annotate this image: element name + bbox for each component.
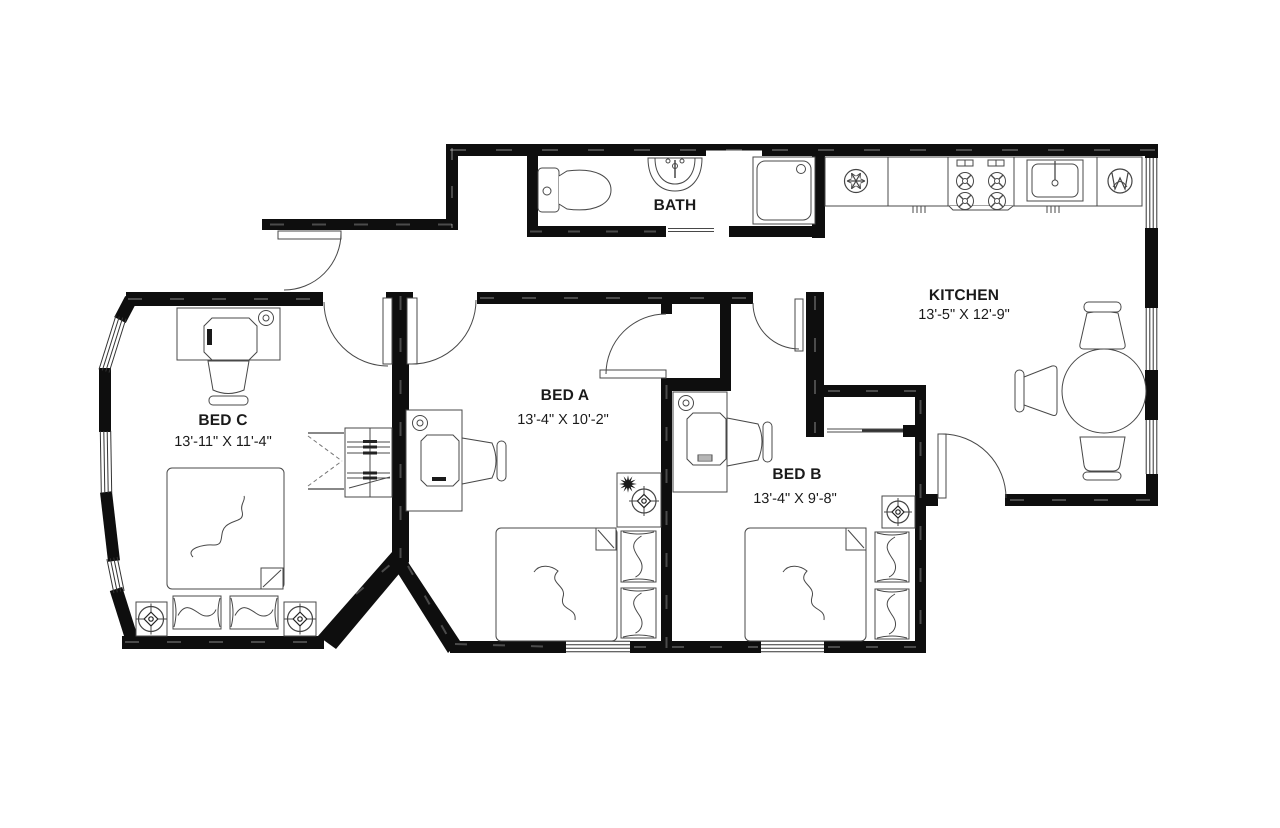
svg-text:BED A: BED A: [541, 387, 590, 404]
svg-text:13'-4" X 10'-2": 13'-4" X 10'-2": [517, 412, 609, 428]
svg-text:KITCHEN: KITCHEN: [929, 287, 999, 304]
svg-text:BED C: BED C: [198, 412, 247, 429]
svg-text:BATH: BATH: [654, 197, 697, 214]
svg-text:BED B: BED B: [772, 466, 821, 483]
svg-text:13'-4" X 9'-8": 13'-4" X 9'-8": [753, 491, 837, 507]
svg-text:13'-11" X 11'-4": 13'-11" X 11'-4": [174, 434, 272, 450]
svg-text:13'-5" X 12'-9": 13'-5" X 12'-9": [918, 307, 1010, 323]
